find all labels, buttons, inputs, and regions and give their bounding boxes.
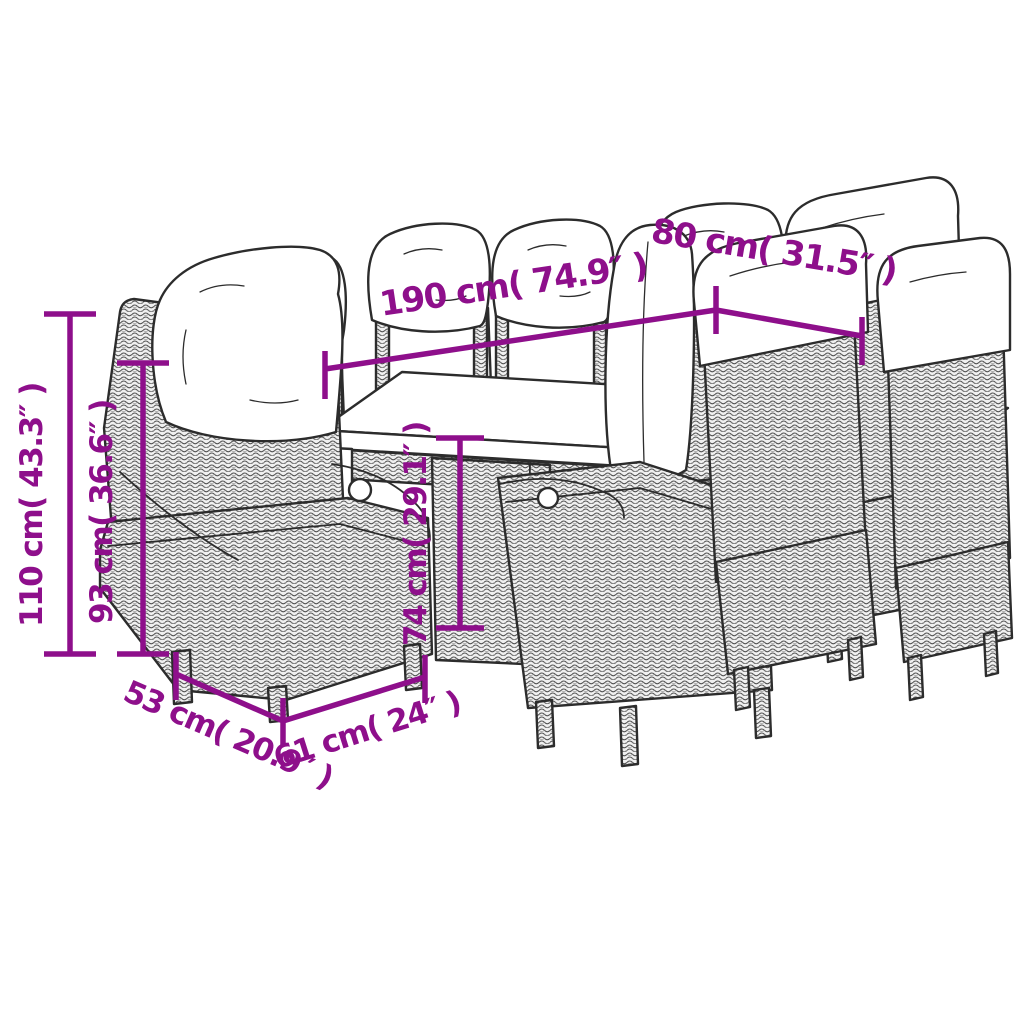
chair-leg: [848, 637, 863, 680]
furniture-dimension-diagram: 190 cm( 74.9″ ) 80 cm( 31.5″ ) 110 cm( 4…: [0, 0, 1024, 1024]
dimension-label: 74 cm( 29.1″ ): [398, 422, 434, 646]
chair-right-end: [877, 238, 1012, 700]
chair-cushion: [152, 247, 342, 441]
recline-latch: [349, 479, 371, 501]
chair-seat: [100, 498, 432, 700]
dimension-label: 93 cm( 36.6″ ): [84, 400, 120, 624]
diagram-canvas: 190 cm( 74.9″ ) 80 cm( 31.5″ ) 110 cm( 4…: [0, 0, 1024, 1024]
chair-leg: [536, 700, 554, 748]
chair-leg: [908, 655, 923, 700]
dimension-label: 61 cm( 24″ ): [269, 684, 464, 777]
chair-leg: [984, 631, 998, 676]
recline-latch: [538, 488, 558, 508]
chair-leg: [734, 667, 750, 710]
chair-leg: [620, 706, 638, 766]
dimension-label: 110 cm( 43.3″ ): [14, 383, 50, 627]
chair-leg: [754, 688, 771, 738]
